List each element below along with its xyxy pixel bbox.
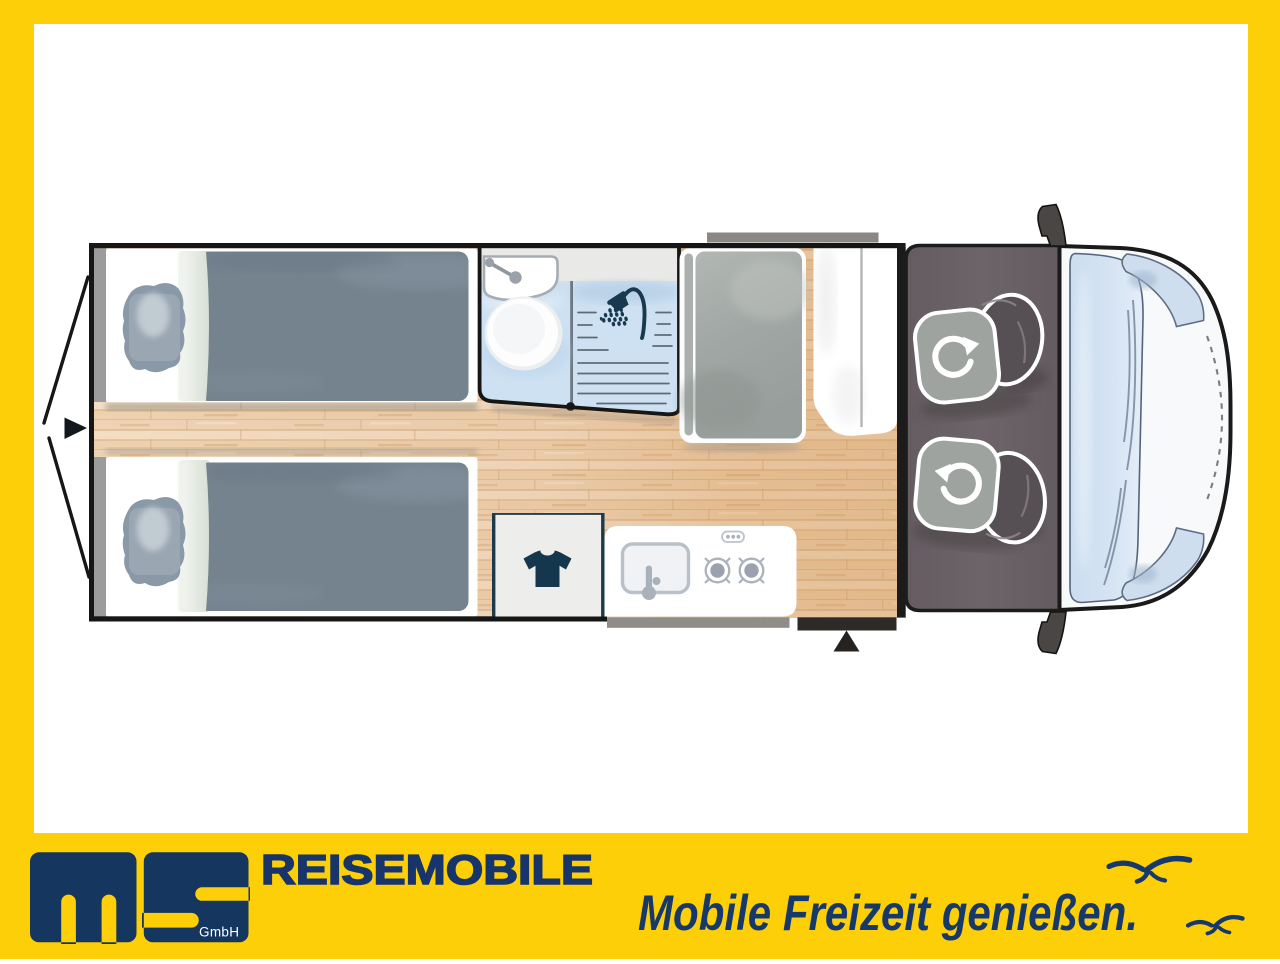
- svg-text:GmbH: GmbH: [199, 925, 239, 940]
- svg-text:REISEMOBILE: REISEMOBILE: [261, 846, 593, 893]
- svg-text:Mobile Freizeit genießen.: Mobile Freizeit genießen.: [638, 885, 1138, 941]
